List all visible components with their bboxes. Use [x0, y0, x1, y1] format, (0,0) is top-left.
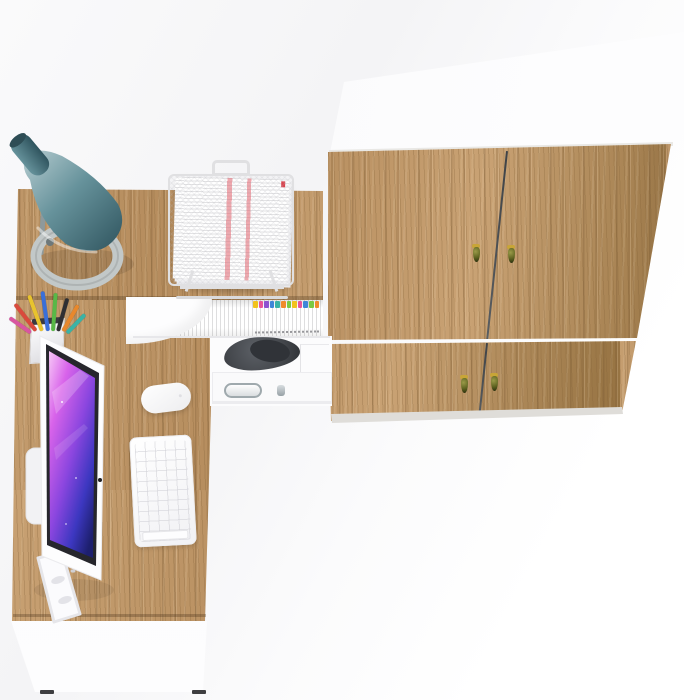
tray-handle [212, 160, 250, 176]
handle-drop [508, 248, 515, 263]
file-tab [287, 301, 292, 308]
mouse-dot [179, 394, 182, 397]
file-tab [275, 301, 280, 308]
drawer-knob [277, 385, 285, 396]
handle-drop [461, 378, 468, 393]
keyboard-keys [134, 440, 191, 543]
screen-sparkle [65, 523, 67, 525]
drawer-shadow [212, 401, 332, 404]
file-tab [303, 301, 308, 308]
screen-sparkle [75, 477, 77, 479]
file-tab [292, 301, 297, 308]
document-tray [162, 158, 300, 300]
desk-foot [192, 690, 206, 694]
file-tab [253, 301, 258, 308]
desk-foot [40, 690, 54, 694]
file-labels-squiggle [255, 325, 319, 333]
keyboard [129, 434, 197, 547]
tray-wire-mesh [168, 174, 294, 286]
chin-logo [71, 569, 76, 572]
wardrobe-door-handle [489, 373, 500, 393]
wardrobe-door-handle [506, 245, 517, 265]
screen-sparkle [61, 401, 63, 403]
shelf-underside-edge [133, 336, 330, 338]
product-photo [0, 0, 684, 700]
tray-crossbar [180, 286, 284, 289]
drawer-handle [224, 383, 262, 398]
wardrobe-door-handle [471, 244, 482, 264]
handle-drop [473, 247, 480, 262]
file-tab [281, 301, 286, 308]
handle-drop [491, 376, 498, 391]
file-tab [270, 301, 275, 308]
file-tab [298, 301, 303, 308]
tray-foot-bar [176, 296, 288, 299]
file-tab [309, 301, 314, 308]
wardrobe-door-handle [459, 375, 470, 395]
desk-lamp [0, 128, 140, 293]
monitor [18, 328, 114, 628]
file-tab [264, 301, 269, 308]
file-tab [315, 301, 320, 308]
file-tab [259, 301, 264, 308]
camera-dot [98, 478, 102, 482]
